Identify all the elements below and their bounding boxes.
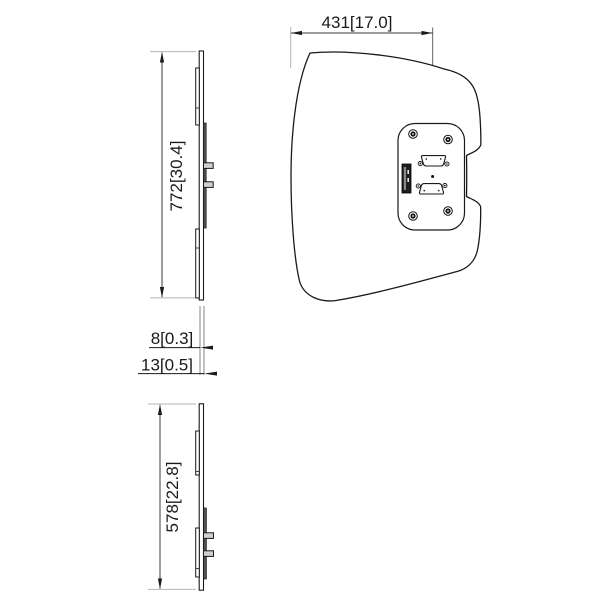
arrowhead-icon (160, 52, 164, 63)
front-strip-lower (196, 229, 200, 298)
screw-icon (409, 212, 418, 221)
mount-peg (204, 163, 214, 169)
mount-rail (204, 123, 207, 228)
arrowhead-icon (291, 31, 302, 35)
mount-peg (204, 533, 214, 539)
arrowhead-icon (158, 404, 162, 415)
dimension-label-thickness-8: 8[0.3] (151, 329, 194, 348)
screw-icon (444, 135, 453, 144)
main-plate (199, 51, 203, 300)
screw-icon (444, 207, 453, 216)
dimension-label-thickness-13: 13[0.5] (141, 356, 193, 375)
technical-drawing-page: 772[30.4] 8[0.3] 13[0.5] 431[17.0] (0, 0, 600, 600)
dimension-label-width-431: 431[17.0] (322, 13, 393, 32)
arrowhead-icon (204, 372, 217, 376)
mount-peg (204, 182, 214, 188)
arrowhead-icon (422, 31, 433, 35)
main-plate (199, 404, 203, 590)
side-view-tall: 772[30.4] (150, 51, 213, 300)
side-view-short: 578[22.8] (148, 404, 214, 590)
front-strip-upper (196, 431, 200, 475)
screw-icon (409, 130, 418, 139)
thickness-dimensions: 8[0.3] 13[0.5] (138, 306, 217, 376)
dimension-label-height-772: 772[30.4] (167, 141, 186, 212)
dimension-label-height-578: 578[22.8] (163, 462, 182, 533)
arrowhead-icon (200, 346, 213, 350)
arrowhead-icon (158, 579, 162, 590)
usb-port-icon (402, 164, 411, 193)
arrowhead-icon (160, 287, 164, 298)
front-strip-upper (196, 68, 200, 125)
front-view: 431[17.0] (291, 13, 481, 301)
mount-rail (204, 508, 207, 579)
technical-drawing-canvas: 772[30.4] 8[0.3] 13[0.5] 431[17.0] (0, 0, 600, 600)
mount-peg (204, 551, 214, 557)
center-dot (431, 175, 434, 178)
front-strip-lower (196, 528, 200, 577)
